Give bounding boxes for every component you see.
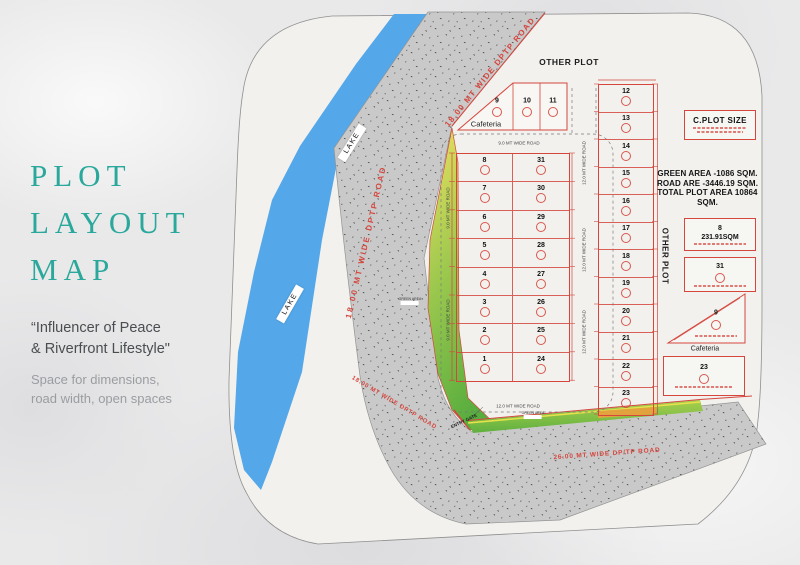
plot-marker-circle xyxy=(522,107,532,117)
stat-road-area: ROAD ARE -3446.19 SQM. xyxy=(650,179,765,189)
other-plot-side-label: OTHER PLOT xyxy=(661,228,670,285)
detail-plot9-number: 9 xyxy=(714,310,718,317)
c-plot-size-box: C.PLOT SIZE xyxy=(684,110,756,140)
green-area-label-1: GREEN AREA xyxy=(399,297,422,305)
detail-plot8-area: 231.91SQM xyxy=(701,234,738,241)
road-label-12mt-v1: 12.0 MT WIDE ROAD xyxy=(582,141,587,185)
road-label-12mt-v3: 12.0 MT WIDE ROAD xyxy=(582,310,587,354)
plot-layout-poster: PLOT LAYOUT MAP “Influencer of Peace & R… xyxy=(0,0,800,565)
top-plot-row: 91011 xyxy=(0,0,800,565)
detail-plot23-box: 23 xyxy=(663,356,745,396)
other-plot-top-label: OTHER PLOT xyxy=(539,57,599,67)
fine-print-line xyxy=(695,335,737,337)
detail-plot23-number: 23 xyxy=(700,364,708,371)
green-area-label-2: GREEN AREA xyxy=(522,411,545,419)
road-label-12mt-v2: 12.0 MT WIDE ROAD xyxy=(582,228,587,272)
green-area-text-1: GREEN AREA xyxy=(399,297,422,301)
detail-plot8-number: 8 xyxy=(718,225,722,232)
fine-print-line xyxy=(697,131,743,133)
fine-print-line xyxy=(675,386,733,388)
stat-total-area: TOTAL PLOT AREA 10864 SQM. xyxy=(650,188,765,207)
plot-marker-circle xyxy=(492,107,502,117)
green-area-bar-1 xyxy=(401,301,419,305)
cafeteria-label: Cafeteria xyxy=(471,120,501,129)
plot-9: 9 xyxy=(495,98,499,105)
road-label-9mt-left-2: 9.0 MT WIDE ROAD xyxy=(446,299,451,340)
green-area-bar-2 xyxy=(524,415,542,419)
detail-plot31-number: 31 xyxy=(716,263,724,270)
detail-plot8-box: 8 231.91SQM xyxy=(684,218,756,251)
plot-marker-circle xyxy=(699,374,709,384)
plot-11: 11 xyxy=(549,98,556,105)
area-statistics: GREEN AREA -1086 SQM. ROAD ARE -3446.19 … xyxy=(650,169,765,207)
plot-marker-circle xyxy=(711,320,721,330)
plot-marker-circle xyxy=(548,107,558,117)
detail-plot31-box: 31 xyxy=(684,257,756,292)
fine-print-line xyxy=(694,243,746,245)
fine-print-line xyxy=(694,285,746,287)
stat-green-area: GREEN AREA -1086 SQM. xyxy=(650,169,765,179)
road-label-9mt-top: 9.0 MT WIDE ROAD xyxy=(498,141,539,146)
detail-plot9-cafeteria: Cafeteria xyxy=(691,346,719,353)
road-label-9mt-left-1: 9.0 MT WIDE ROAD xyxy=(446,187,451,228)
green-area-text-2: GREEN AREA xyxy=(522,411,545,415)
fine-print-line xyxy=(693,127,747,129)
plot-marker-circle xyxy=(715,273,725,283)
c-plot-size-title: C.PLOT SIZE xyxy=(693,117,747,125)
road-label-12mt-bottom: 12.0 MT WIDE ROAD xyxy=(496,404,540,409)
plot-10: 10 xyxy=(523,98,531,105)
